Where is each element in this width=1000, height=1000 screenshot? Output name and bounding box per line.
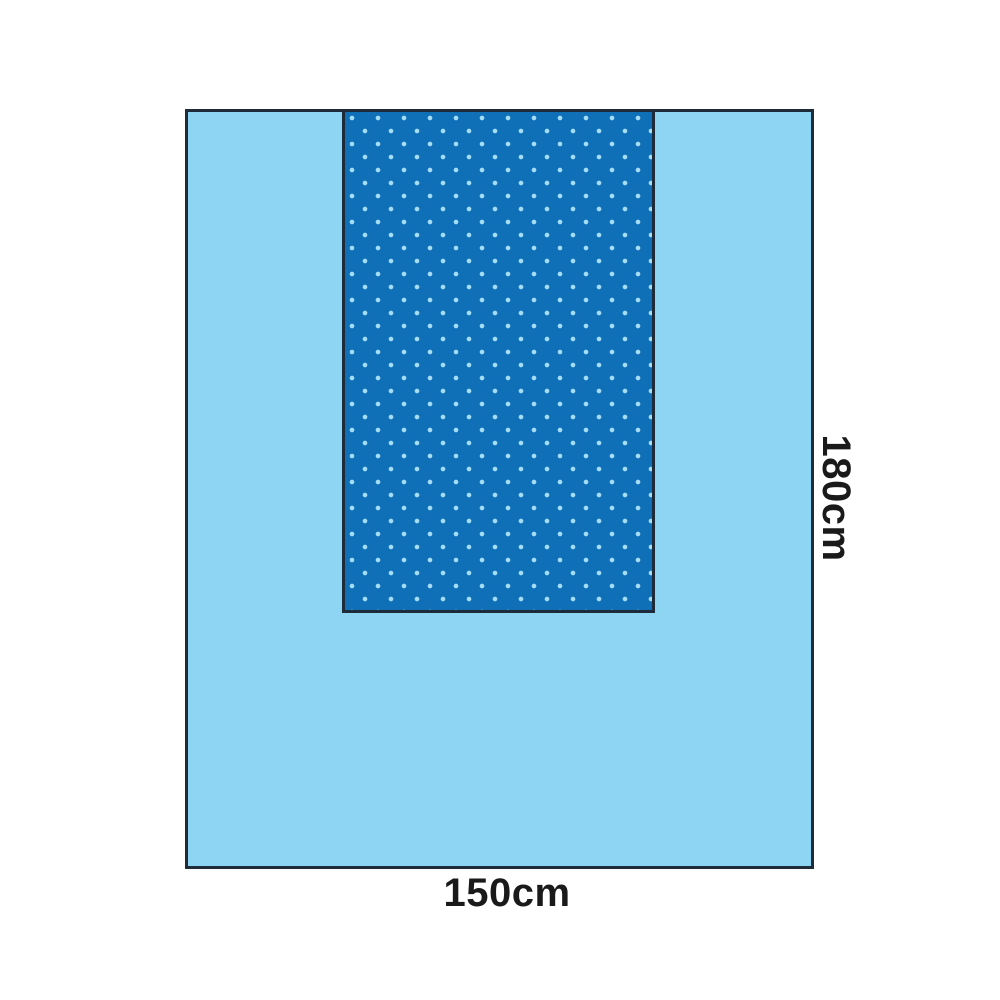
width-dimension-label: 150cm: [443, 873, 570, 913]
reinforced-dotted-zone: [342, 109, 655, 613]
diagram-canvas: 150cm 180cm: [0, 0, 1000, 1000]
height-dimension-label: 180cm: [816, 434, 856, 561]
